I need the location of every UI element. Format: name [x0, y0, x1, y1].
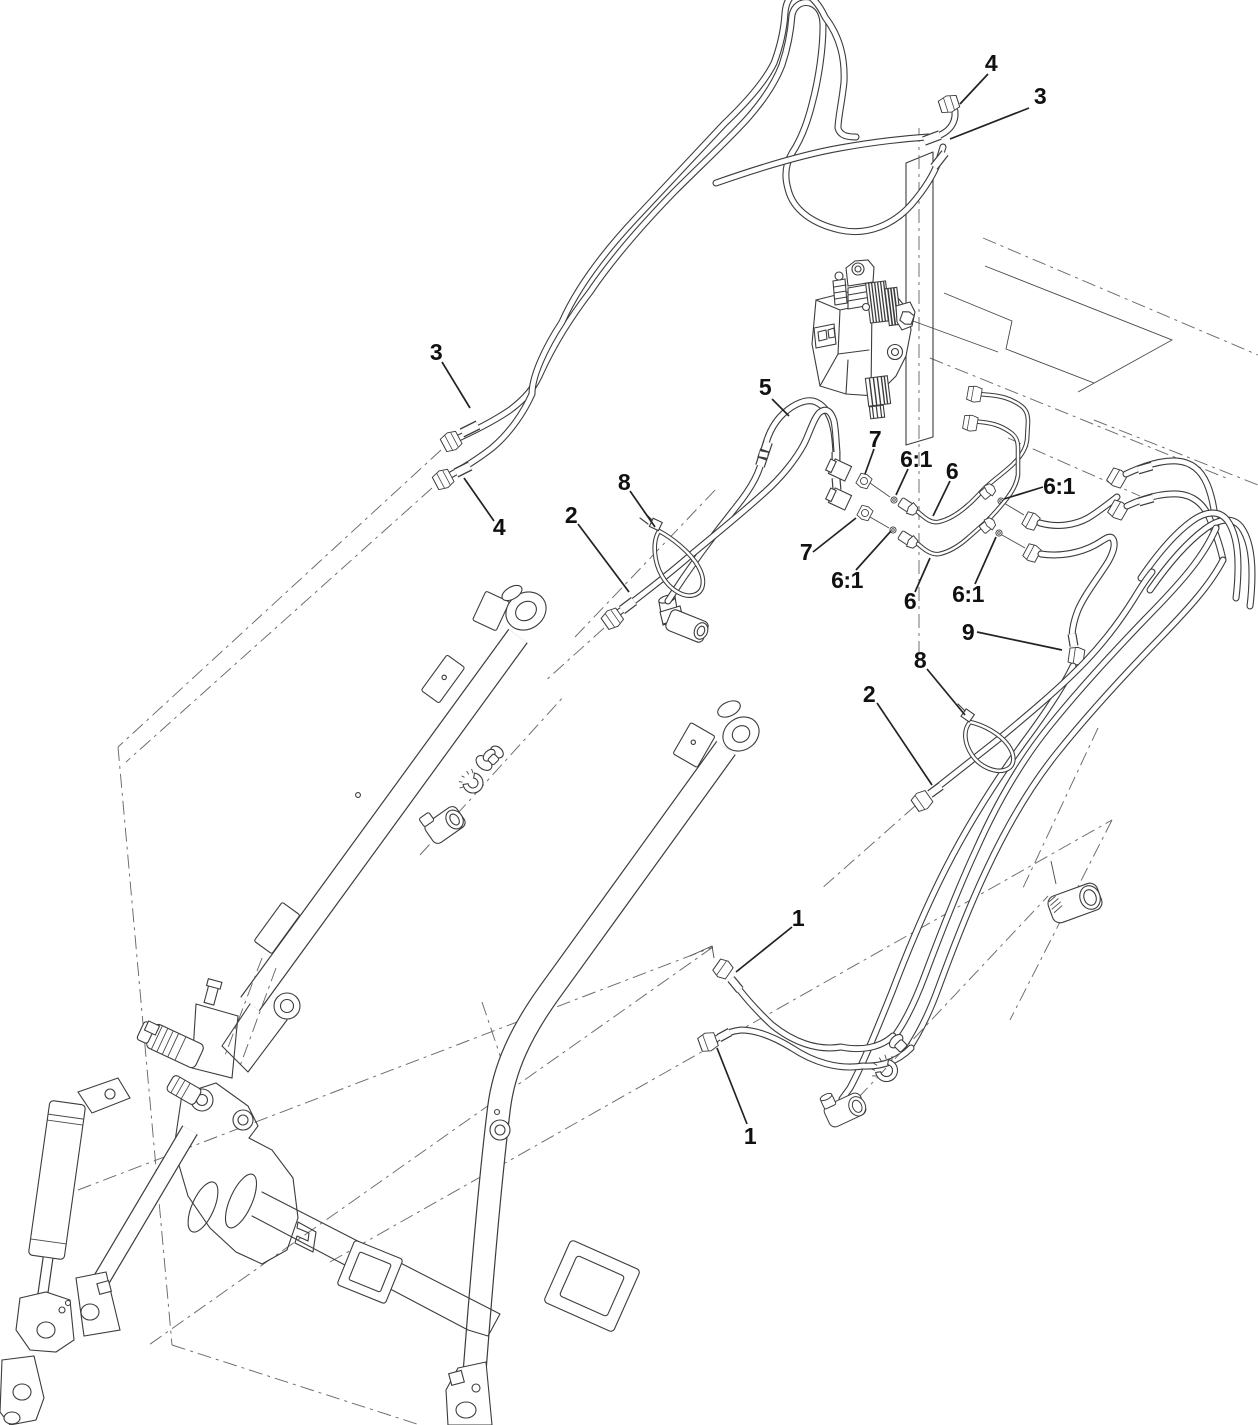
svg-text:7: 7	[869, 426, 881, 452]
svg-text:7: 7	[800, 539, 812, 565]
svg-text:3: 3	[1034, 83, 1046, 109]
svg-text:6:1: 6:1	[952, 581, 984, 607]
svg-text:2: 2	[863, 681, 875, 707]
svg-text:8: 8	[618, 469, 631, 495]
svg-text:1: 1	[792, 905, 805, 931]
svg-text:4: 4	[985, 50, 998, 76]
svg-text:3: 3	[430, 339, 442, 365]
svg-text:6: 6	[904, 588, 916, 614]
svg-text:6: 6	[946, 458, 958, 484]
svg-text:6:1: 6:1	[1043, 473, 1075, 499]
svg-text:4: 4	[493, 514, 506, 540]
svg-text:9: 9	[962, 619, 974, 645]
svg-text:6:1: 6:1	[831, 567, 863, 593]
svg-text:1: 1	[744, 1123, 757, 1149]
svg-text:6:1: 6:1	[900, 446, 932, 472]
svg-text:8: 8	[914, 647, 927, 673]
svg-text:2: 2	[565, 502, 577, 528]
svg-text:5: 5	[759, 374, 772, 400]
